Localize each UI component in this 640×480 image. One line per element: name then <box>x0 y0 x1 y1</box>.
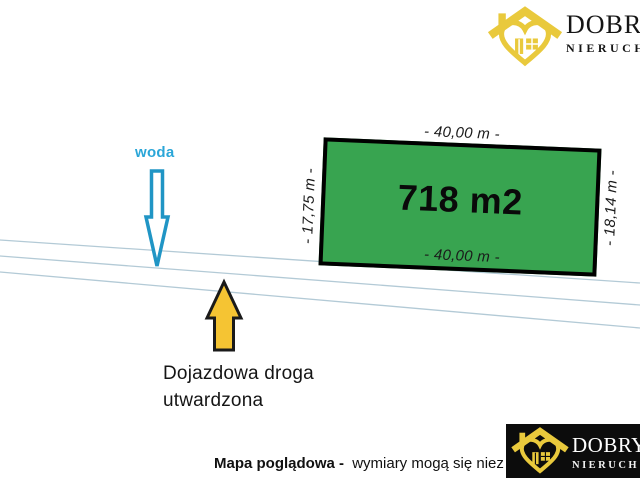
house-heart-icon <box>511 427 569 475</box>
water-label: woda <box>135 144 175 161</box>
brand-name: DOBRY <box>572 433 640 458</box>
brand-text-top: DOBRY NIERUCH <box>566 10 640 56</box>
house-heart-icon <box>488 6 562 68</box>
down-arrow-icon <box>146 171 168 266</box>
road-label-line1: Dojazdowa droga <box>163 360 314 387</box>
brand-subtitle: NIERUCH <box>566 41 640 56</box>
dimension-label-bottom: - 40,00 m - <box>424 246 500 266</box>
dimension-label-top: - 40,00 m - <box>424 123 500 143</box>
brand-text-bottom: DOBRY NIERUCH <box>572 433 640 471</box>
road-label: Dojazdowa droga utwardzona <box>163 360 314 414</box>
brand-logo-top: DOBRY NIERUCH <box>488 4 640 68</box>
road-label-line2: utwardzona <box>163 387 314 414</box>
brand-logo-bottom: DOBRY NIERUCH <box>506 424 640 478</box>
plot-area-label: 718 m2 <box>397 176 524 223</box>
brand-subtitle: NIERUCH <box>572 460 640 471</box>
map-disclaimer: Mapa poglądowa - wymiary mogą się niez <box>214 455 504 472</box>
dimension-label-right: - 18,14 m - <box>601 170 621 246</box>
disclaimer-bold-text: Mapa poglądowa - <box>214 455 344 472</box>
disclaimer-regular-text: wymiary mogą się niez <box>352 455 504 472</box>
dimension-label-left: - 17,75 m - <box>299 168 319 244</box>
plot-map-canvas: 718 m2 - 40,00 m - - 40,00 m - - 17,75 m… <box>0 0 640 480</box>
brand-name: DOBRY <box>566 10 640 40</box>
